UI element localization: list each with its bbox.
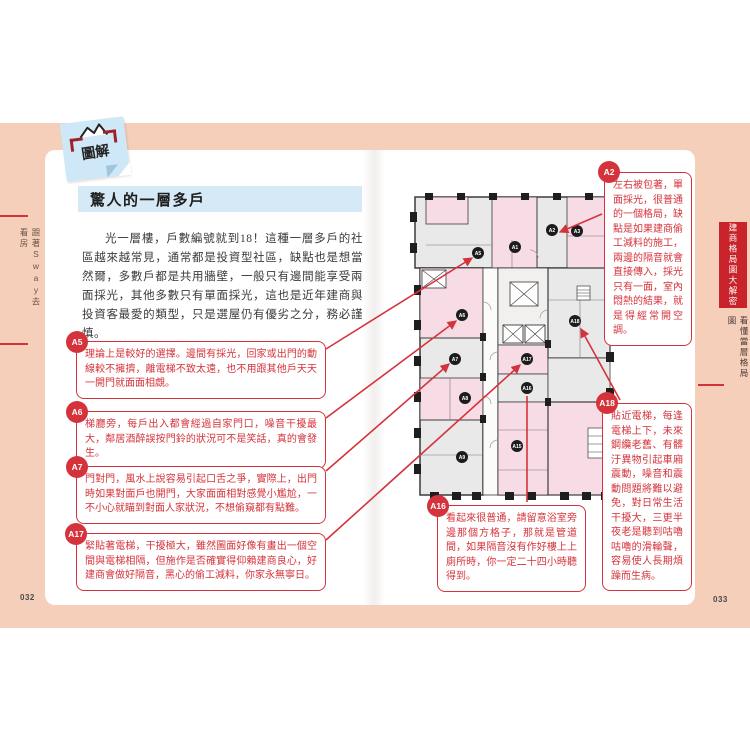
callout-a2-box: 左右被包著，單面採光，很普通的一個格局，缺點是如果建商偷工減料的施工，兩邊的隔音…	[604, 172, 692, 346]
callout-a17-box: 緊貼著電梯，干擾極大，雖然圖面好像有畫出一個空間與電梯相隔，但施作是否確實得仰賴…	[76, 533, 326, 591]
callout-a7-box: 門對門，風水上說容易引起口舌之爭，實際上，出門時如果對面戶也開門，大家面面相對感…	[76, 466, 326, 524]
callout-a6-text: 梯廳旁，每戶出入都會經過自家門口，噪音干擾最大，鄰居酒醉誤按門鈴的狀況可不是笑話…	[85, 419, 317, 459]
page-number-left: 032	[20, 593, 35, 602]
book-spread: 跟著Sway去看房 建商格局圖大解密 看懂當層格局圖 032 033	[0, 0, 750, 750]
right-margin-rule	[698, 384, 724, 386]
callout-a18-text: 貼近電梯，每逢電梯上下，未來鋼纜老舊、有髒汙異物引起車廂震動，噪音和震動問題將難…	[611, 411, 683, 582]
callout-a18-badge: A18	[596, 392, 618, 414]
left-margin-rule-bottom	[0, 343, 28, 345]
sticker-fold	[117, 162, 131, 176]
callout-a7-badge: A7	[66, 456, 88, 478]
callout-a2-text: 左右被包著，單面採光，很普通的一個格局，缺點是如果建商偷工減料的施工，兩邊的隔音…	[613, 180, 683, 336]
callout-a2-badge: A2	[598, 161, 620, 183]
callout-a6-badge: A6	[66, 401, 88, 423]
chapter-tab: 建商格局圖大解密	[719, 222, 747, 308]
callout-a5-box: 理論上是較好的選擇。邊間有採光，回家或出門的動線較不擁擠，離電梯不致太遠，也不用…	[76, 341, 326, 399]
chapter-tab-label: 建商格局圖大解密	[727, 223, 739, 307]
left-margin-rule-top	[0, 215, 28, 217]
callout-a5-text: 理論上是較好的選擇。邊間有採光，回家或出門的動線較不擁擠，離電梯不致太遠，也不用…	[85, 349, 317, 389]
callout-a7-text: 門對門，風水上說容易引起口舌之爭，實際上，出門時如果對面戶也開門，大家面面相對感…	[85, 474, 317, 514]
callout-a17-text: 緊貼著電梯，干擾極大，雖然圖面好像有畫出一個空間與電梯相隔，但施作是否確實得仰賴…	[85, 541, 317, 581]
callout-a16-text: 看起來很普通，請留意浴室旁邊那個方格子，那就是管道間，如果隔音沒有作好樓上上廁所…	[446, 513, 577, 582]
callout-a6-box: 梯廳旁，每戶出入都會經過自家門口，噪音干擾最大，鄰居酒醉誤按門鈴的狀況可不是笑話…	[76, 411, 326, 469]
illustrated-sticker: 圖解	[60, 116, 131, 181]
section-title-bar: 驚人的一層多戶	[78, 186, 362, 212]
callout-a5-badge: A5	[66, 331, 88, 353]
section-title: 驚人的一層多戶	[78, 189, 206, 210]
callout-a16-badge: A16	[427, 495, 449, 517]
callout-a16-box: 看起來很普通，請留意浴室旁邊那個方格子，那就是管道間，如果隔音沒有作好樓上上廁所…	[437, 505, 586, 592]
intro-paragraph: 光一層樓，戶數編號就到18！這種一層多戶的社區越來越常見，通常都是投資型社區，缺…	[82, 230, 363, 344]
callout-a17-badge: A17	[65, 523, 87, 545]
page-number-right: 033	[713, 595, 728, 604]
page-gutter	[363, 150, 385, 605]
spine-right-section-label: 看懂當層格局圖	[726, 316, 750, 386]
callout-a18-box: 貼近電梯，每逢電梯上下，未來鋼纜老舊、有髒汙異物引起車廂震動，噪音和震動問題將難…	[602, 403, 692, 591]
spine-left-label: 跟著Sway去看房	[18, 228, 42, 314]
